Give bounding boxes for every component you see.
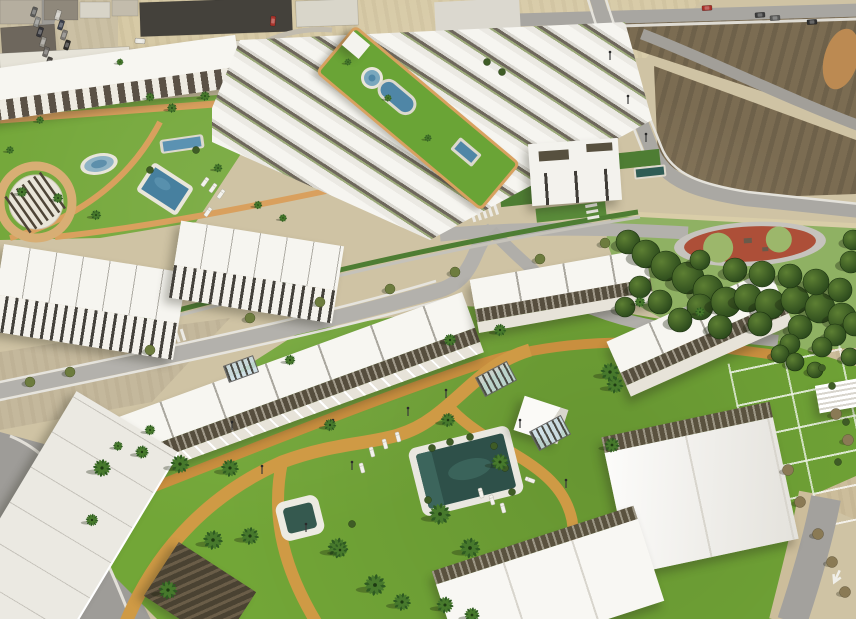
road-arrow xyxy=(831,569,844,584)
street-tree-icon xyxy=(447,267,461,277)
townhouse-row-c xyxy=(0,244,187,360)
aerial-render xyxy=(0,0,856,619)
bare-tree-icon xyxy=(823,557,838,568)
car-icon xyxy=(702,5,712,11)
villa-pool xyxy=(633,164,666,179)
villa-windows xyxy=(530,168,622,206)
villa-pergola-strip xyxy=(586,142,612,152)
townhouse-row-d xyxy=(169,221,344,324)
palm-tree-icon xyxy=(250,201,262,210)
villa-pergola-strip xyxy=(538,149,569,161)
palm-tree-icon xyxy=(276,214,287,222)
sun-lounger-icon xyxy=(216,189,225,199)
street-tree-icon xyxy=(242,313,256,323)
bare-tree-icon xyxy=(836,587,851,598)
street-tree-icon xyxy=(532,254,546,264)
street-tree-icon xyxy=(382,284,396,294)
standalone-villa xyxy=(528,138,622,206)
lamp-post-icon xyxy=(645,133,648,142)
